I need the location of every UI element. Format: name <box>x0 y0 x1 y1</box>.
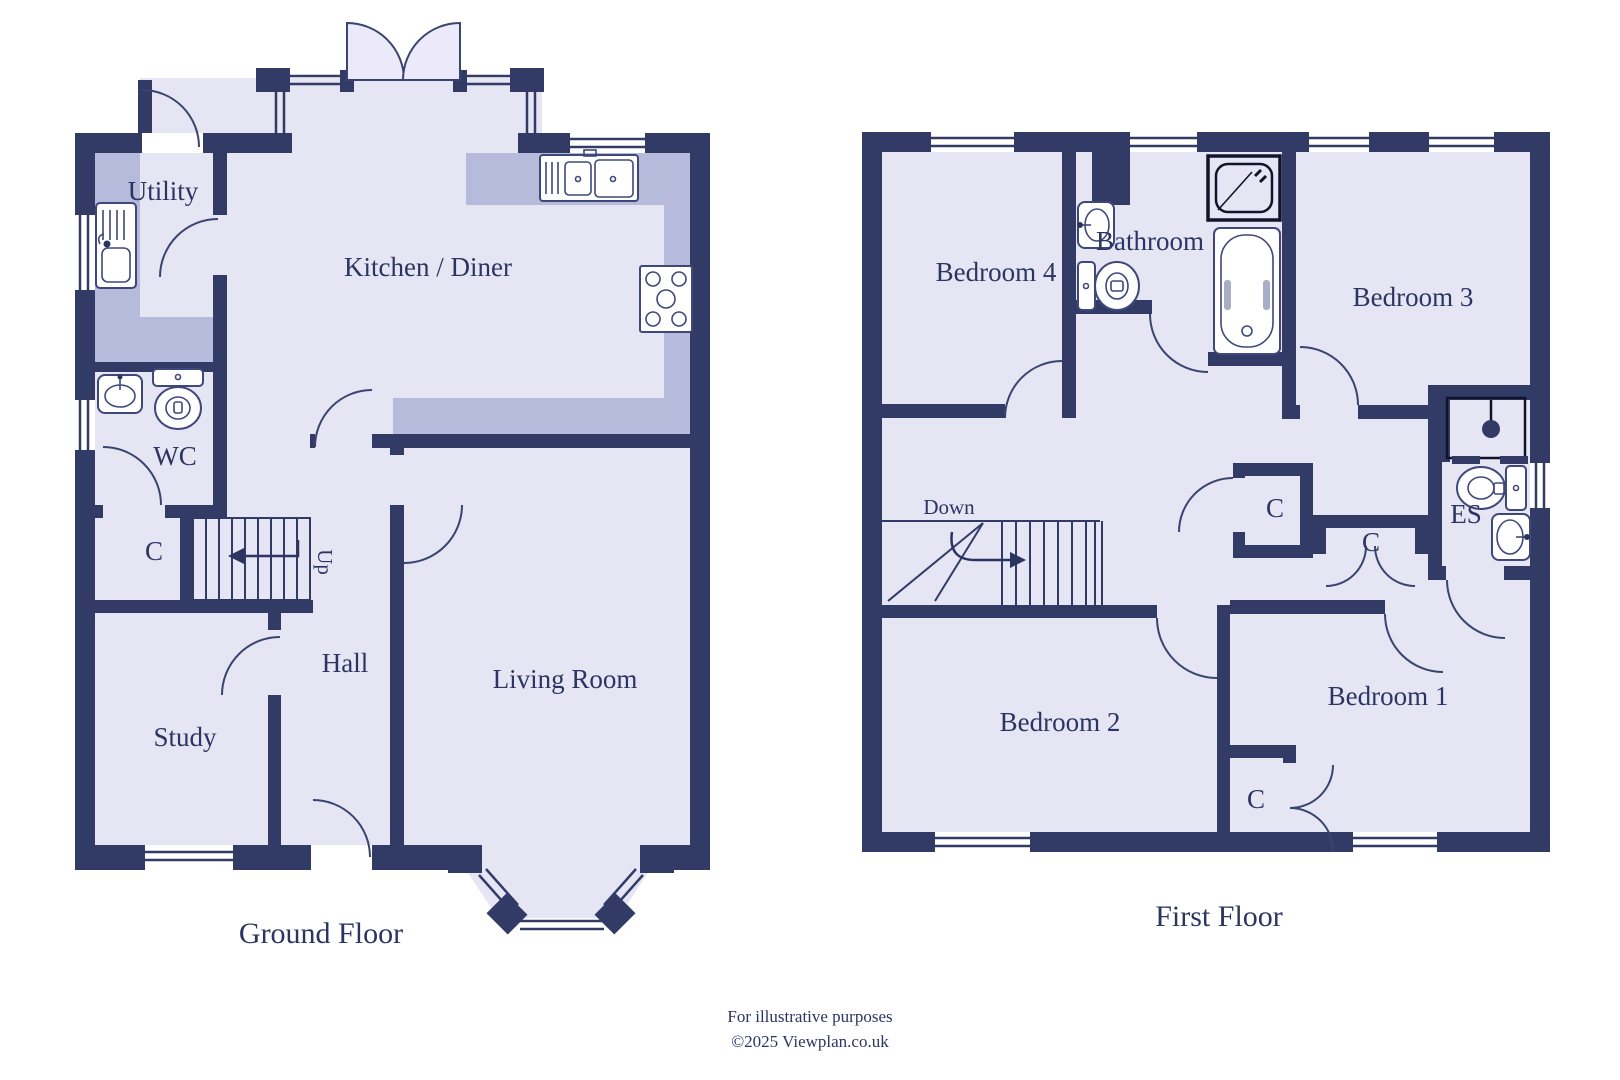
first-floor-plan: Bedroom 4 Bathroom Bedroom 3 Down C C ES… <box>862 132 1550 933</box>
utility-window <box>75 215 95 290</box>
room-label-cupboard-ground: C <box>145 536 163 566</box>
room-label-bedroom4: Bedroom 4 <box>936 257 1057 287</box>
bedroom3-window-right <box>1429 132 1494 152</box>
room-label-wc: WC <box>153 441 197 471</box>
wc-window <box>75 400 95 450</box>
front-door-opening <box>311 845 372 870</box>
room-label-cupboard-bedroom1: C <box>1247 784 1265 814</box>
kitchen-counter-bottom <box>393 398 690 434</box>
wc-sink-icon <box>98 375 142 414</box>
utility-sink-icon <box>96 203 136 288</box>
stairs-down-label: Down <box>923 495 975 519</box>
wc-toilet-icon <box>153 369 203 429</box>
ground-floor-title: Ground Floor <box>239 917 403 950</box>
room-label-living: Living Room <box>493 664 638 694</box>
room-label-hall: Hall <box>322 648 369 678</box>
floorplan-canvas: Utility Kitchen / Diner WC C Hall Study … <box>0 0 1620 1080</box>
ensuite-window <box>1530 463 1550 508</box>
footer: For illustrative purposes ©2025 Viewplan… <box>727 1007 892 1051</box>
ground-floor-plan: Utility Kitchen / Diner WC C Hall Study … <box>75 23 710 950</box>
room-label-ensuite: ES <box>1450 499 1482 529</box>
bedroom4-window <box>931 132 1014 152</box>
bedroom1-window <box>1353 832 1437 852</box>
bathroom-window <box>1130 132 1197 152</box>
room-label-bathroom: Bathroom <box>1096 226 1204 256</box>
first-floor-title: First Floor <box>1155 900 1283 933</box>
hob-icon <box>640 266 692 332</box>
room-label-bedroom2: Bedroom 2 <box>1000 707 1121 737</box>
room-label-utility: Utility <box>128 176 199 206</box>
kitchen-window <box>570 133 645 153</box>
floorplan-page: Utility Kitchen / Diner WC C Hall Study … <box>0 0 1620 1080</box>
stairs-up-label: Up <box>313 549 337 575</box>
back-door-opening <box>142 133 203 153</box>
bedroom3-window-left <box>1309 132 1369 152</box>
first-floor-area <box>862 132 1550 852</box>
footer-disclaimer: For illustrative purposes <box>727 1007 892 1026</box>
footer-copyright: ©2025 Viewplan.co.uk <box>731 1032 889 1051</box>
bath-icon <box>1214 228 1280 354</box>
room-label-cupboard-landing: C <box>1266 493 1284 523</box>
room-label-cupboard-middle: C <box>1362 527 1380 557</box>
room-label-bedroom1: Bedroom 1 <box>1328 681 1449 711</box>
bedroom2-window <box>935 832 1030 852</box>
bathroom-toilet-icon <box>1078 262 1139 310</box>
study-window <box>145 845 233 870</box>
room-label-kitchen: Kitchen / Diner <box>344 252 512 282</box>
room-label-study: Study <box>153 722 217 752</box>
ensuite-sink-icon <box>1492 514 1530 560</box>
kitchen-sink-icon <box>540 150 638 201</box>
chimney-block <box>1092 152 1130 205</box>
room-label-bedroom3: Bedroom 3 <box>1353 282 1474 312</box>
utility-counter-2 <box>95 317 215 362</box>
